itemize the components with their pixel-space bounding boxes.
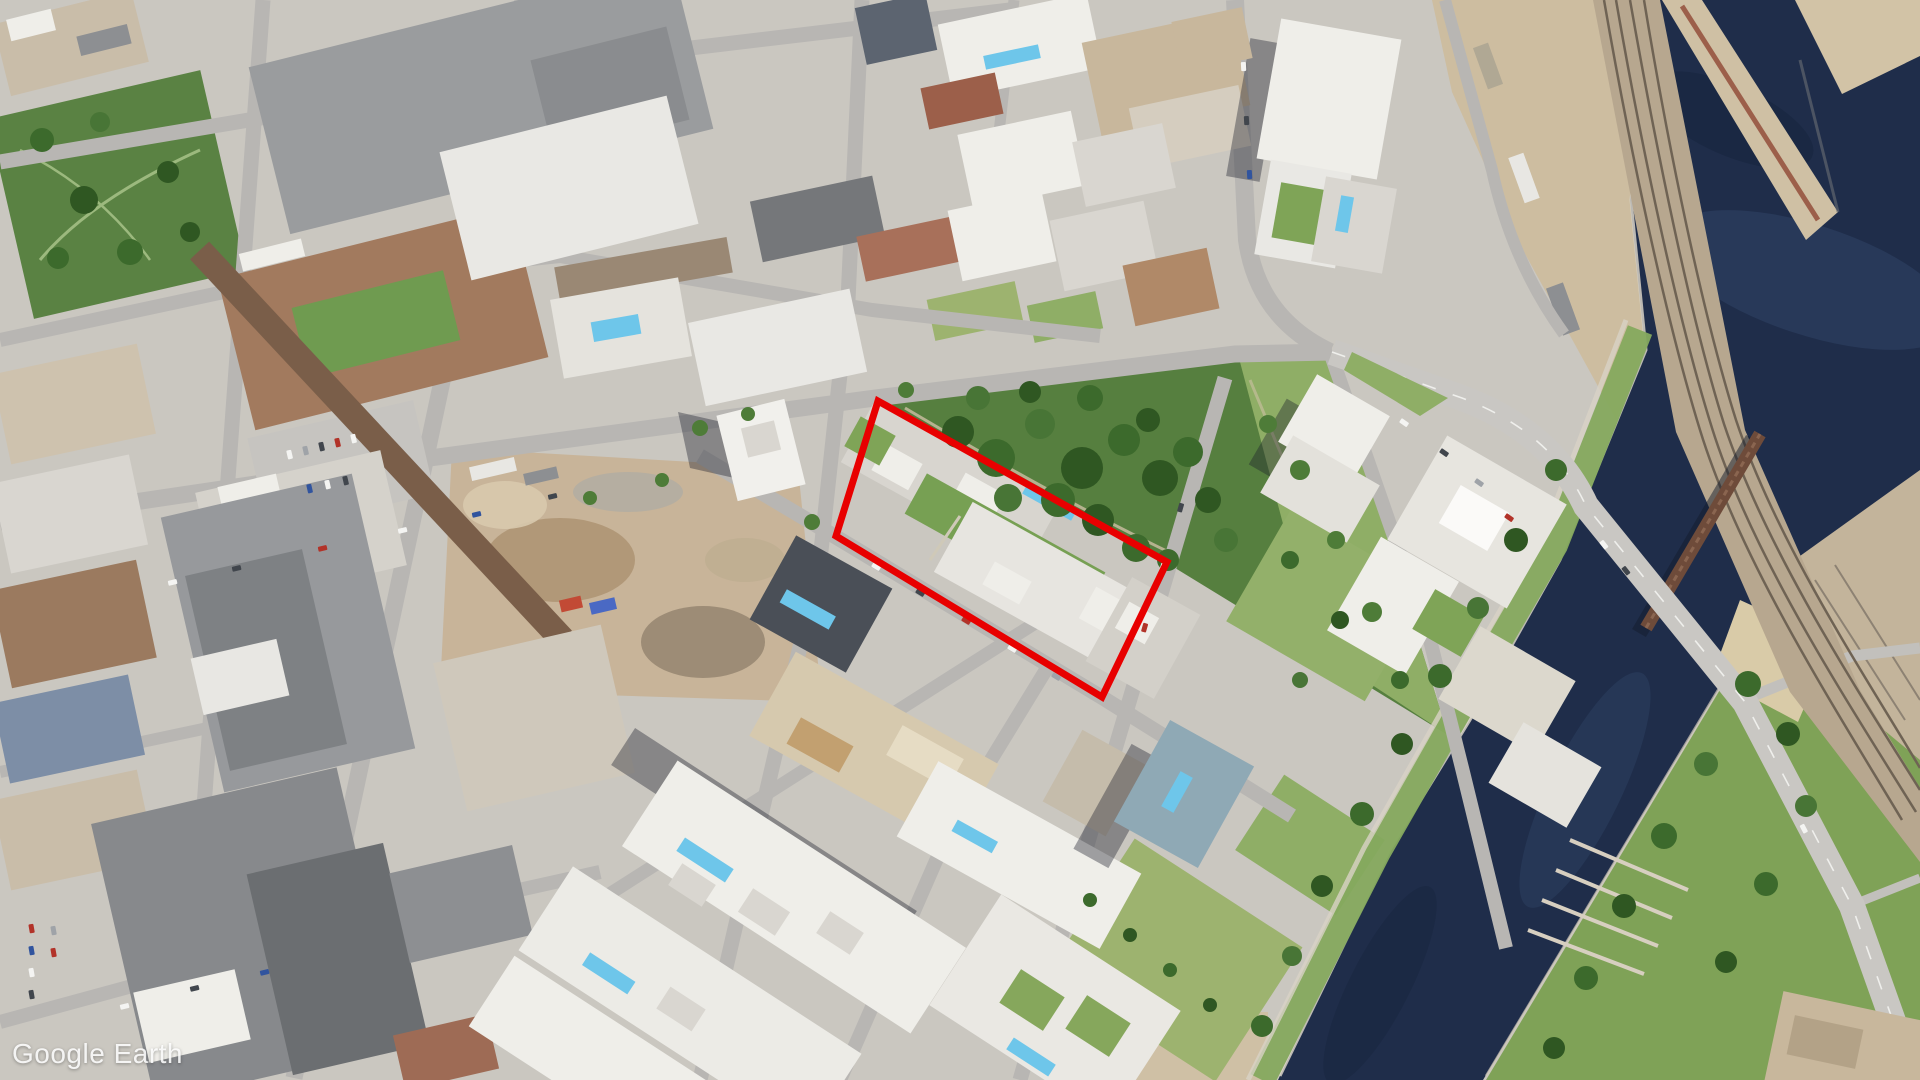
google-earth-watermark: Google Earth [12,1038,183,1070]
google-earth-viewport: Google Earth [0,0,1920,1080]
satellite-map-canvas[interactable] [0,0,1920,1080]
